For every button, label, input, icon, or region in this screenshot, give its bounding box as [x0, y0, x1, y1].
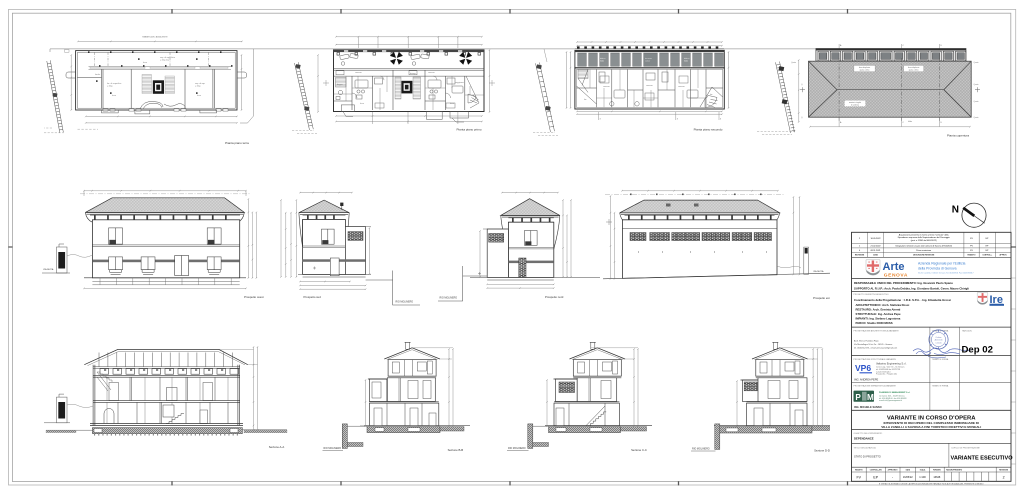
- svg-text:soggiorno: soggiorno: [455, 82, 465, 84]
- svg-text:Via Montallegro 16 int 2a - 16: Via Montallegro 16 int 2a - 16145 - Geno…: [854, 343, 893, 346]
- svg-text:Quota: Quota: [974, 83, 979, 86]
- svg-text:GENOVA: GENOVA: [884, 273, 908, 279]
- svg-text:quota colmo: quota colmo: [860, 68, 870, 71]
- svg-text:camera: camera: [678, 86, 686, 88]
- svg-text:= disp.: = disp.: [195, 86, 201, 88]
- svg-text:h=m: h=m: [112, 95, 116, 97]
- svg-text:Quota: Quota: [974, 116, 979, 119]
- svg-text:IMPIANTI: Ing. Stefano Lagoste: IMPIANTI: Ing. Stefano Lagostena: [856, 316, 901, 320]
- svg-text:h=m: h=m: [143, 62, 147, 64]
- svg-text:locale: locale: [95, 74, 101, 76]
- svg-text:Dipendenza espresso dalla Sopr: Dipendenza espresso dalla Soprintendenza…: [898, 236, 951, 239]
- svg-text:camera: camera: [428, 72, 436, 74]
- svg-text:REVISIONE: REVISIONE: [999, 469, 1008, 471]
- svg-text:Architetti: Architetti: [935, 339, 943, 342]
- svg-text:PROGETTO DEFINITIVO/ESECUTIVO: PROGETTO DEFINITIVO/ESECUTIVO: [854, 294, 890, 296]
- svg-text:N: N: [952, 205, 959, 216]
- svg-text:camera: camera: [646, 85, 654, 87]
- svg-text:Valtarino Engineering S.r.l.: Valtarino Engineering S.r.l.: [876, 362, 907, 366]
- svg-text:Ordine: Ordine: [935, 337, 942, 339]
- svg-text:DEPENDANCE: DEPENDANCE: [854, 437, 874, 441]
- svg-text:Sezione D-D: Sezione D-D: [814, 449, 830, 453]
- svg-text:Azienda Regionale per l'Ediliz: Azienda Regionale per l'Edilizia: [918, 261, 966, 265]
- svg-text:Pianta copertura: Pianta copertura: [947, 133, 969, 137]
- svg-text:Prospetto ovest: Prospetto ovest: [244, 295, 264, 299]
- svg-text:della Provincia di Genova: della Provincia di Genova: [918, 266, 957, 270]
- svg-text:Sezione C-C: Sezione C-C: [631, 448, 647, 452]
- svg-text:1:100: 1:100: [919, 475, 926, 479]
- svg-text:P.iva/partita P.legale albo: P.iva/partita P.legale albo: [876, 373, 897, 376]
- svg-text:ING. MICHELE SANSO: ING. MICHELE SANSO: [854, 405, 882, 409]
- svg-text:08.11.2021: 08.11.2021: [871, 250, 882, 252]
- svg-text:VIA NIZZA: VIA NIZZA: [43, 268, 54, 271]
- svg-text:PROGETTAZIONE STRUTTURALE VARI: PROGETTAZIONE STRUTTURALE VARIANTE: [854, 358, 897, 361]
- svg-text:e-mail info@pmanagement.it: e-mail info@pmanagement.it: [879, 399, 902, 402]
- svg-text:Arch. Enrico Pantaleo Firpo: Arch. Enrico Pantaleo Firpo: [854, 340, 879, 343]
- svg-text:di ardesia: di ardesia: [851, 104, 859, 106]
- svg-text:Quota: Quota: [974, 61, 979, 64]
- svg-text:P: P: [855, 393, 861, 402]
- svg-text:VP6: VP6: [855, 363, 871, 373]
- svg-text:Integrazioni richieste via pec: Integrazioni richieste via pec dal Comun…: [895, 244, 952, 247]
- svg-text:Quota: Quota: [791, 61, 796, 64]
- svg-text:STRUTTURALE: Ing. Andrea Pepe: STRUTTURALE: Ing. Andrea Pepe: [856, 312, 902, 316]
- svg-text:VARIANTE ESECUTIVO: VARIANTE ESECUTIVO: [951, 455, 1014, 461]
- svg-text:PLANNING DI MANAGEMENT S.r.l.: PLANNING DI MANAGEMENT S.r.l.: [879, 391, 911, 394]
- svg-text:SUPPORTO AL R.U.P.: Arch. Paol: SUPPORTO AL R.U.P.: Arch. Paola Debbia, …: [854, 287, 969, 291]
- svg-text:Prospetto sud: Prospetto sud: [304, 295, 322, 299]
- svg-text:RIO MOLINERO: RIO MOLINERO: [324, 447, 342, 450]
- svg-text:CONTROLL.: CONTROLL.: [982, 255, 992, 257]
- svg-text:DESCRIZIONE REVISIONE: DESCRIZIONE REVISIONE: [913, 255, 935, 257]
- svg-text:Pianta piano secondo: Pianta piano secondo: [694, 128, 723, 132]
- svg-text:tel. 010/2512173 - email: pimu: tel. 010/2512173 - email: pimuraario@gma…: [854, 347, 897, 350]
- svg-text:OGGETTO DELL'INTERVENTO: OGGETTO DELL'INTERVENTO: [854, 433, 883, 435]
- svg-text:RESTAURO: Arch. Erminia Airent: RESTAURO: Arch. Erminia Airenti: [856, 307, 901, 311]
- svg-text:APPROV.: APPROV.: [999, 254, 1007, 257]
- svg-text:PROGETTAZIONE ARCHITETTONICA V: PROGETTAZIONE ARCHITETTONICA VARIANTE: [854, 329, 900, 332]
- svg-text:falde: falde: [684, 61, 688, 63]
- svg-text:Sezione A-A: Sezione A-A: [269, 445, 285, 449]
- svg-text:camera: camera: [355, 72, 363, 74]
- svg-text:falde: falde: [600, 61, 604, 63]
- svg-text:Dep 02: Dep 02: [962, 345, 993, 356]
- svg-text:RIO MOLINERO: RIO MOLINERO: [508, 447, 526, 450]
- svg-text:loc.: loc.: [710, 94, 714, 96]
- svg-text:(prot. n.12345 del 46/5/2022): (prot. n.12345 del 46/5/2022): [911, 239, 937, 242]
- svg-text:bagno: bagno: [337, 84, 343, 86]
- svg-text:TIMBRO E FIRMA: TIMBRO E FIRMA: [932, 385, 949, 388]
- svg-text:STATO DI PROGETTO: STATO DI PROGETTO: [854, 455, 881, 459]
- svg-text:= disp.: = disp.: [107, 86, 113, 88]
- svg-text:RIO MOLINERO: RIO MOLINERO: [692, 448, 710, 451]
- svg-text:RIO MOLINERO: RIO MOLINERO: [440, 297, 458, 300]
- svg-text:VILLA ZANELLI A SAVONA A FINI: VILLA ZANELLI A SAVONA A FINI TURISTICO …: [881, 425, 981, 429]
- svg-text:RESPONSABILE UNICO DEL PROCEDI: RESPONSABILE UNICO DEL PROCEDIMENTO: Ing…: [854, 281, 953, 285]
- svg-text:FABBRICATO ADIACENTE: FABBRICATO ADIACENTE: [142, 36, 168, 39]
- svg-text:h=m: h=m: [450, 103, 454, 105]
- svg-text:DATA: DATA: [873, 254, 878, 257]
- svg-text:PARCO: Studio DODI MOSS: PARCO: Studio DODI MOSS: [856, 321, 893, 325]
- svg-text:Prima emissione: Prima emissione: [916, 250, 932, 252]
- svg-text:ING. ANDREA PEPE: ING. ANDREA PEPE: [854, 378, 878, 382]
- svg-text:Acquisizione preventivi in mer: Acquisizione preventivi in merito al tes…: [899, 234, 950, 237]
- svg-text:h=m: h=m: [197, 95, 201, 97]
- svg-text:Arte: Arte: [883, 261, 905, 273]
- svg-text:RIO MOLINERO: RIO MOLINERO: [396, 300, 414, 303]
- svg-text:FV: FV: [857, 476, 862, 480]
- svg-text:E' VIETATO A NORMA DI LEGGE LA: E' VIETATO A NORMA DI LEGGE LA RIPRODUZI…: [879, 482, 984, 485]
- svg-text:= disp.mq: = disp.mq: [160, 60, 169, 62]
- svg-text:EP: EP: [873, 476, 878, 480]
- svg-text:Coordinamento della Progettazi: Coordinamento della Progettazione : I.R.…: [854, 298, 951, 302]
- svg-text:Via B. Castello, 3 16121 Genov: Via B. Castello, 3 16121 Genova Tel. 010…: [918, 272, 974, 275]
- svg-text:13648: 13648: [933, 476, 941, 479]
- svg-text:h=m: h=m: [360, 103, 364, 105]
- svg-text:camera: camera: [603, 86, 611, 88]
- svg-text:loc.: loc.: [584, 99, 588, 101]
- svg-text:Pianta piano primo: Pianta piano primo: [456, 127, 481, 131]
- svg-text:REVISIONE: REVISIONE: [855, 255, 865, 257]
- svg-text:21.02.2022: 21.02.2022: [870, 245, 881, 247]
- svg-text:Prospetto nord: Prospetto nord: [545, 295, 564, 299]
- svg-text:2: 2: [1003, 476, 1005, 480]
- svg-text:Prospetto est: Prospetto est: [813, 296, 830, 300]
- svg-text:LIVELLO DI PROGETTAZIONE: LIVELLO DI PROGETTAZIONE: [952, 446, 981, 449]
- svg-text:n.1145: n.1145: [936, 342, 943, 344]
- svg-text:Quota: Quota: [974, 100, 979, 103]
- svg-text:VIA NIZZA: VIA NIZZA: [813, 270, 824, 273]
- svg-text:PROGETTAZIONE IMPIANTISTICA VA: PROGETTAZIONE IMPIANTISTICA VARIANTE: [854, 385, 897, 388]
- svg-text:ARCHITETTONICO: Arch. Stefania: ARCHITETTONICO: Arch. Stefania Rossi: [856, 303, 910, 307]
- svg-text:solare: solare: [645, 60, 650, 63]
- svg-text:Sezione B-B: Sezione B-B: [448, 448, 464, 452]
- svg-text:TIMBRO E FIRMA: TIMBRO E FIRMA: [932, 358, 949, 361]
- svg-text:M: M: [867, 393, 874, 402]
- svg-text:TITOLO DELLA TAVOLA: TITOLO DELLA TAVOLA: [854, 446, 877, 449]
- svg-text:16.05.2022: 16.05.2022: [870, 238, 881, 240]
- svg-text:quota colmo: quota colmo: [909, 68, 919, 71]
- svg-text:TAVOLA N.: TAVOLA N.: [962, 329, 972, 332]
- svg-text:16/05/22: 16/05/22: [903, 476, 913, 479]
- svg-text:Pianta piano terra: Pianta piano terra: [225, 141, 249, 145]
- svg-text:REDATTO: REDATTO: [968, 254, 977, 257]
